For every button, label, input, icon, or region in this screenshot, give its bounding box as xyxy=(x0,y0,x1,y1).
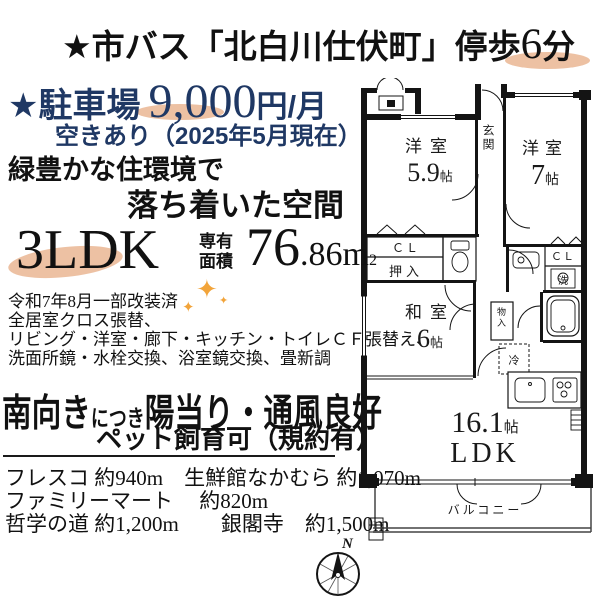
room-size-western1: 5.9帖 xyxy=(385,158,475,188)
layout-3ldk: 3LDK xyxy=(16,218,159,282)
pet-line: ペット飼育可（規約有） xyxy=(96,419,382,456)
headline-busstop: ★市バス「北白川仕伏町」停歩6分 xyxy=(62,20,575,69)
sparkle-icon: ✦ xyxy=(196,276,218,302)
room-label-entrance: 玄関 xyxy=(480,124,497,152)
room-size-western1-num: 5.9 xyxy=(407,158,440,187)
room-size-japanese: 6帖 xyxy=(390,324,470,354)
compass-north-label: N xyxy=(341,536,354,552)
floorplan: 玄関 洋室 5.9帖 洋室 7帖 ＣＬ 押入 ＣＬ 洗 物入 冷 和室 6帖 1… xyxy=(345,78,598,545)
room-size-western2-num: 7 xyxy=(531,160,545,191)
closet-label-2: ＣＬ xyxy=(545,248,581,264)
sparkle-icon: ✦ xyxy=(182,300,195,315)
room-size-western2-unit: 帖 xyxy=(545,173,559,188)
room-size-western1-unit: 帖 xyxy=(440,169,453,184)
headline-walk-minutes: 6 xyxy=(521,20,543,69)
room-size-japanese-unit: 帖 xyxy=(430,335,443,350)
parking-line: ★駐車場 9,000 円/月 xyxy=(8,74,327,129)
room-label-western2: 洋室 xyxy=(510,134,580,159)
area-label: 専有 面積 xyxy=(199,232,239,271)
fridge-label: 冷 xyxy=(502,352,526,368)
parking-per-month: 円/月 xyxy=(256,81,327,126)
divider-line xyxy=(3,455,335,457)
room-size-japanese-num: 6 xyxy=(417,324,430,353)
area-sup: 2 xyxy=(369,252,377,270)
oshiire-label: 押入 xyxy=(369,261,443,280)
area-dec: .86 xyxy=(300,236,343,274)
laundry-label: 洗 xyxy=(551,272,575,287)
room-size-ldk-num: 16.1 xyxy=(451,406,504,439)
room-label-ldk: LDK xyxy=(415,438,555,470)
room-size-western2: 7帖 xyxy=(510,160,580,192)
headline-prefix: ★市バス「北白川仕伏町」停歩 xyxy=(62,20,521,68)
area-label-line1: 専有 xyxy=(199,232,239,252)
room-size-ldk-unit: 帖 xyxy=(504,420,519,436)
compass: N xyxy=(298,534,382,600)
room-label-japanese: 和室 xyxy=(390,298,470,323)
parking-price: 9,000 xyxy=(148,74,256,129)
closet-label-1: ＣＬ xyxy=(369,239,443,256)
room-size-ldk: 16.1帖 xyxy=(415,406,555,440)
area-value: 76.86m2 xyxy=(246,216,377,278)
headline-walk-unit: 分 xyxy=(542,20,575,68)
sparkle-icon: ✦ xyxy=(219,296,228,307)
room-label-western1: 洋室 xyxy=(385,132,475,157)
area-label-line2: 面積 xyxy=(199,252,239,272)
balcony-label: バルコニー xyxy=(415,501,555,518)
parking-label: ★駐車場 xyxy=(8,78,140,127)
south-main1: 南向き xyxy=(2,382,91,437)
area-unit: m xyxy=(343,236,369,274)
storage-label: 物入 xyxy=(495,307,508,329)
area-int: 76 xyxy=(246,216,300,278)
compass-icon: N xyxy=(298,534,382,600)
flyer-page: ★市バス「北白川仕伏町」停歩6分 ★駐車場 9,000 円/月 空きあり（202… xyxy=(0,0,600,600)
